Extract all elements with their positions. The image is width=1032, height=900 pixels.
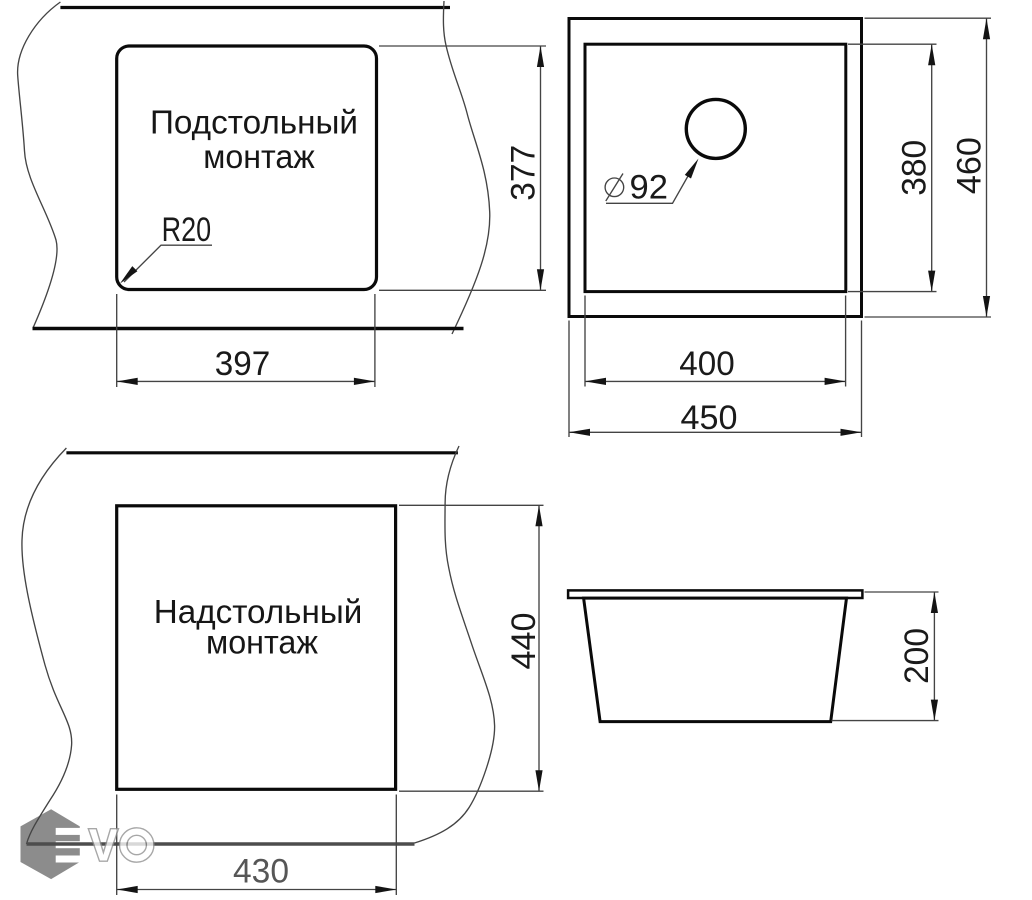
svg-text:400: 400	[679, 345, 735, 383]
svg-text:377: 377	[505, 145, 543, 201]
svg-text:440: 440	[505, 613, 543, 670]
svg-text:монтаж: монтаж	[206, 624, 318, 661]
svg-text:200: 200	[898, 628, 936, 684]
svg-text:380: 380	[896, 140, 934, 196]
svg-text:450: 450	[681, 399, 738, 437]
svg-text:Подстольный: Подстольный	[150, 104, 358, 141]
svg-text:397: 397	[215, 345, 271, 383]
svg-text:монтаж: монтаж	[203, 138, 315, 175]
svg-text:430: 430	[233, 853, 289, 891]
svg-text:R20: R20	[162, 211, 212, 249]
svg-text:460: 460	[951, 137, 989, 194]
svg-text:92: 92	[630, 169, 669, 207]
